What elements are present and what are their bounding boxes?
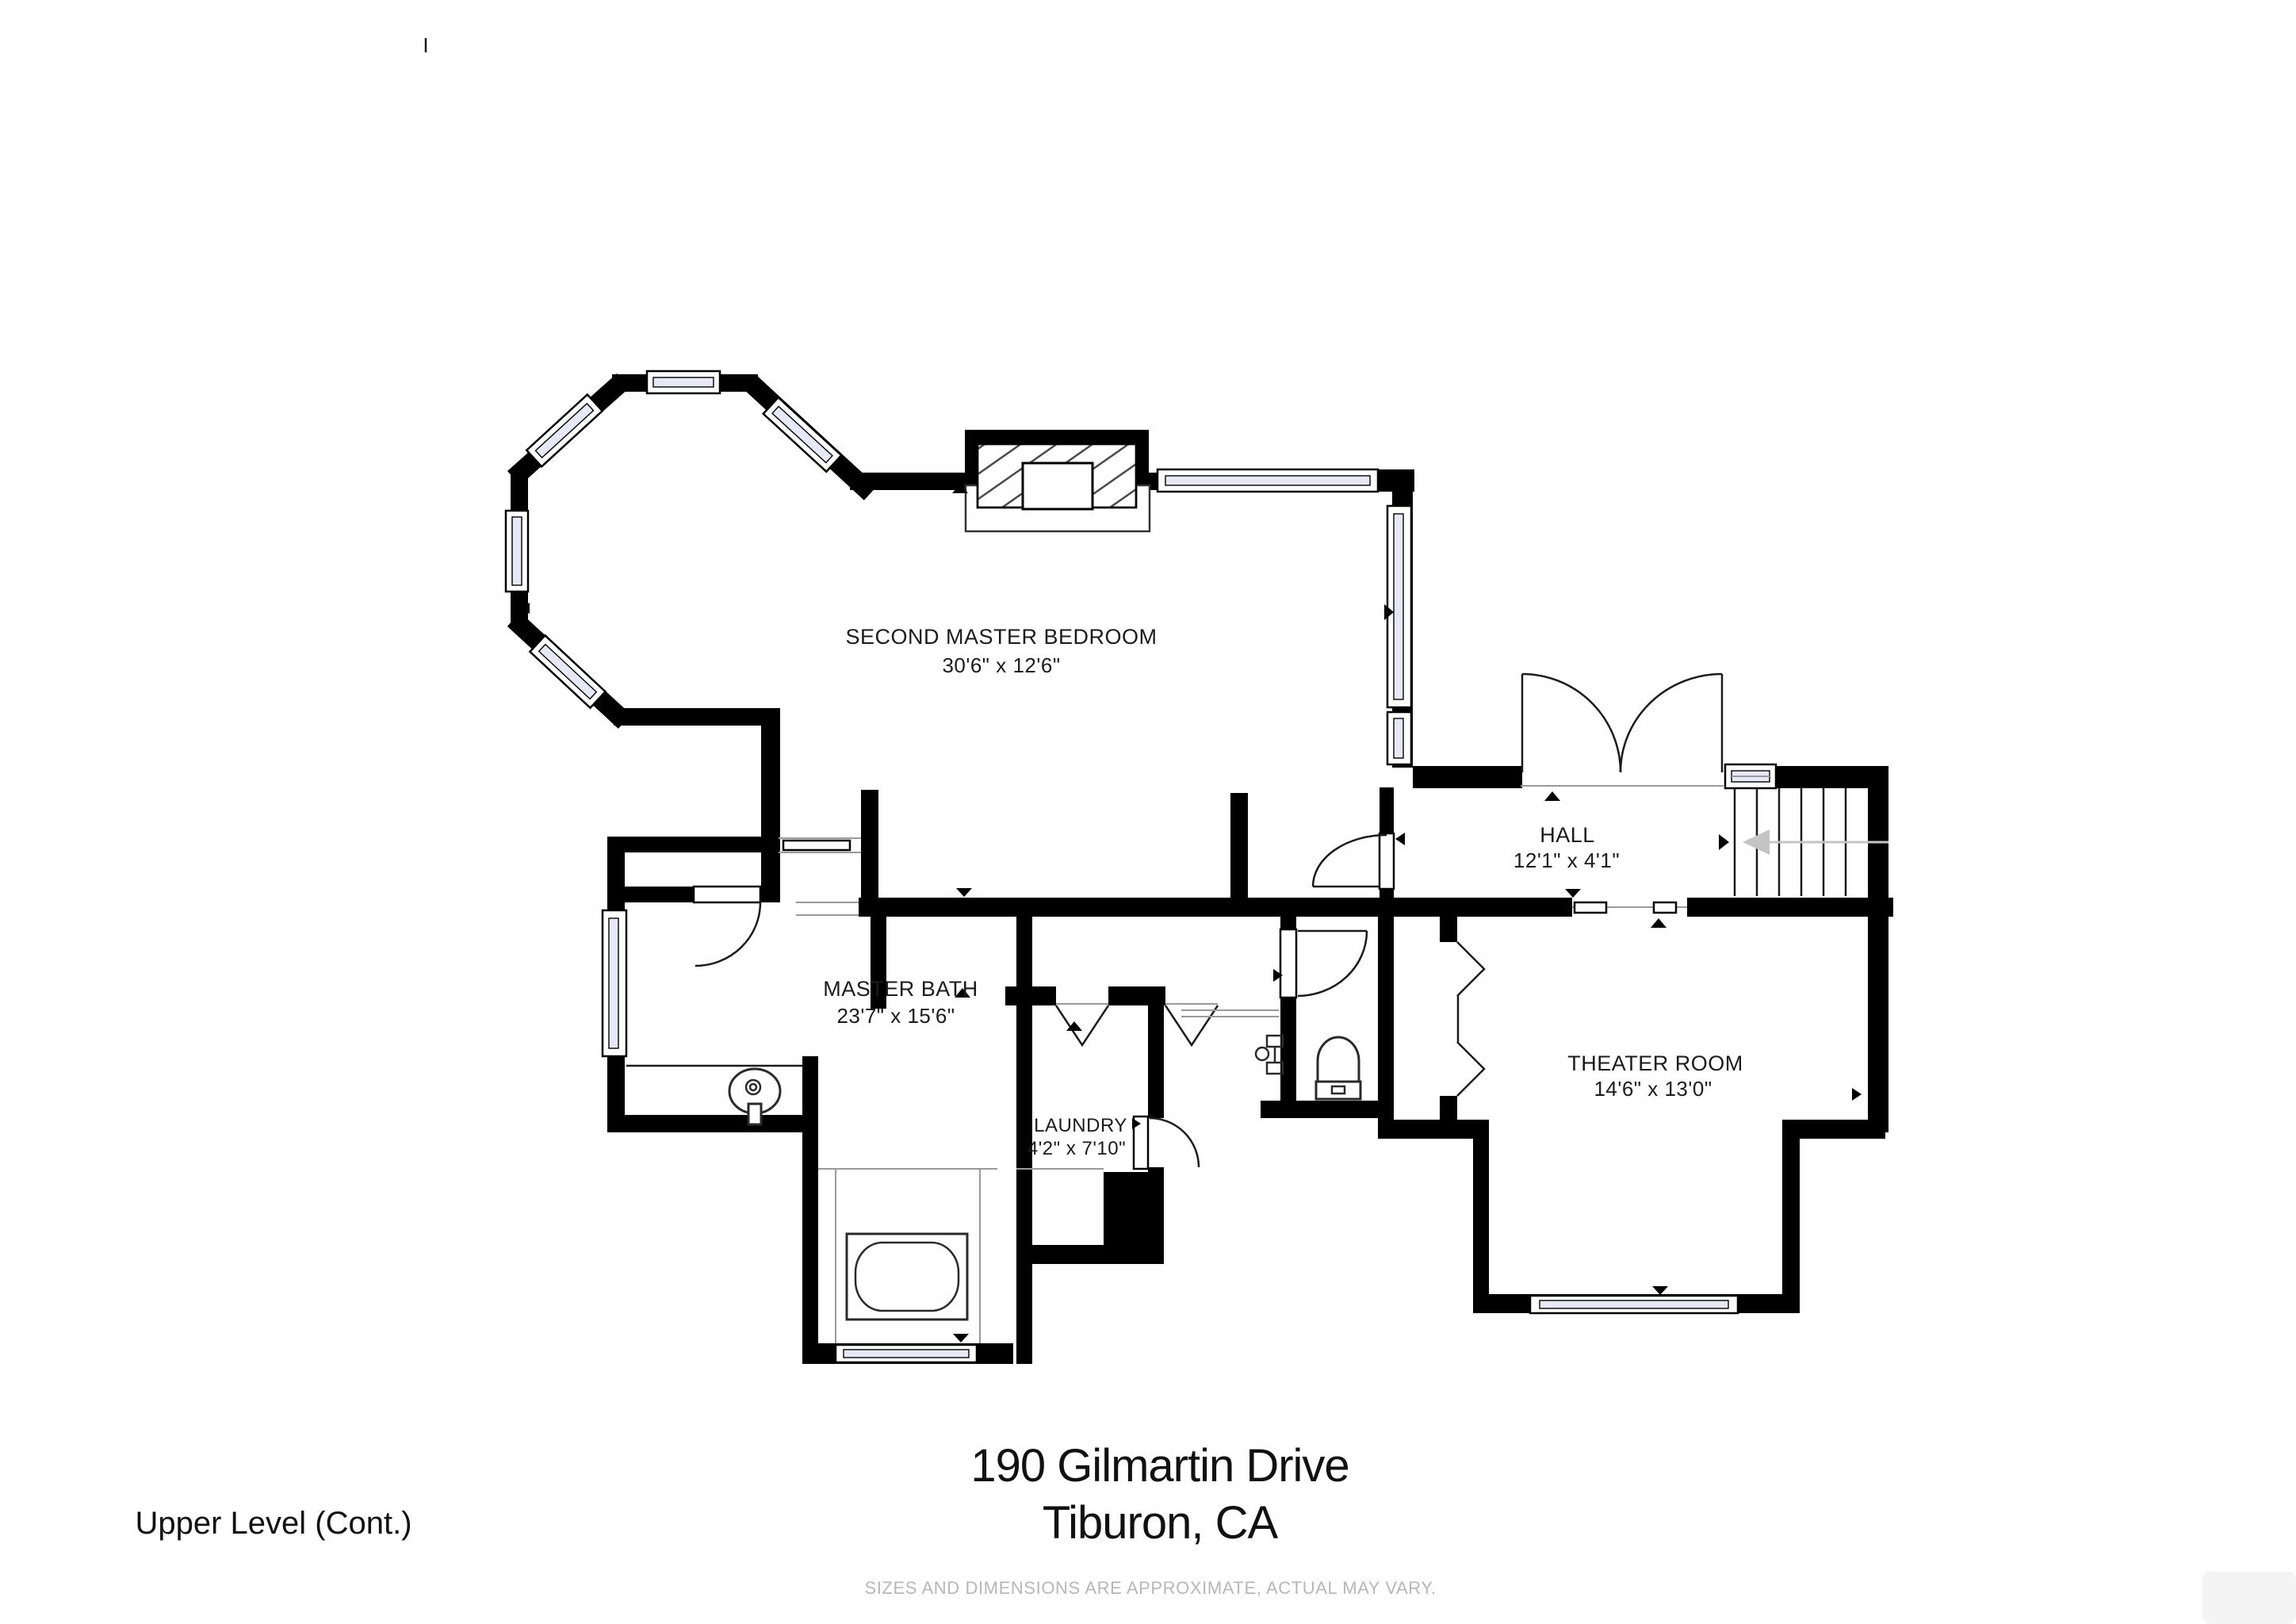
room-label-theater-room: THEATER ROOM 14'6" x 13'0" [1567, 1051, 1743, 1101]
window-symbol [763, 397, 842, 472]
window-symbol [506, 511, 528, 592]
window-symbol [530, 635, 605, 707]
fireplace-icon [965, 430, 1150, 531]
door-swing [694, 887, 760, 966]
door-swing [1313, 833, 1394, 889]
floorplan-drawing: SECOND MASTER BEDROOM 30'6" x 12'6" MAST… [0, 0, 2296, 1624]
window-symbol [1387, 506, 1411, 707]
walls [511, 374, 1893, 1364]
address-line-1: 190 Gilmartin Drive [970, 1440, 1349, 1492]
room-name: LAUNDRY [1034, 1115, 1127, 1136]
room-name: HALL [1540, 823, 1595, 847]
room-label-second-master-bedroom: SECOND MASTER BEDROOM 30'6" x 12'6" [845, 625, 1157, 677]
room-label-hall: HALL 12'1" x 4'1" [1513, 823, 1620, 872]
stairs-icon [1719, 788, 1888, 896]
room-dims: 12'1" x 4'1" [1513, 848, 1620, 872]
window-symbol [1387, 712, 1411, 764]
floorplan-page: SECOND MASTER BEDROOM 30'6" x 12'6" MAST… [0, 0, 2296, 1624]
address-line-2: Tiburon, CA [1043, 1497, 1279, 1549]
window-symbol [1530, 1296, 1738, 1313]
watermark-blob [2202, 1572, 2296, 1624]
doors [694, 674, 1724, 1169]
double-door-swing [1521, 674, 1724, 786]
window-symbol [836, 1345, 977, 1362]
door-swing [1280, 929, 1367, 998]
room-dims: 4'2" x 7'10" [1027, 1138, 1126, 1159]
pedestal-sink-icon [1256, 1036, 1283, 1074]
room-label-laundry: LAUNDRY 4'2" x 7'10" [1020, 1115, 1141, 1159]
room-label-master-bath: MASTER BATH 23'7" x 15'6" [823, 977, 978, 1028]
room-dims: 23'7" x 15'6" [836, 1004, 955, 1028]
window-symbol [647, 371, 720, 393]
disclaimer-text: SIZES AND DIMENSIONS ARE APPROXIMATE, AC… [864, 1578, 1436, 1598]
window-symbol [1158, 469, 1378, 492]
window-symbol [603, 910, 626, 1056]
door-swing [1134, 1116, 1199, 1169]
room-name: MASTER BATH [823, 977, 978, 1001]
window-symbol [526, 395, 603, 467]
bathtub-icon [818, 1169, 997, 1343]
footer: 190 Gilmartin Drive Tiburon, CA Upper Le… [135, 1440, 1436, 1598]
toilet-icon [1316, 1037, 1360, 1099]
room-dims: 14'6" x 13'0" [1594, 1077, 1712, 1101]
theater-double-door-icon [1457, 942, 1484, 1096]
room-dims: 30'6" x 12'6" [942, 653, 1060, 677]
window-symbol [1725, 764, 1776, 788]
room-name: THEATER ROOM [1567, 1051, 1743, 1075]
room-name: SECOND MASTER BEDROOM [845, 625, 1157, 649]
level-label: Upper Level (Cont.) [135, 1506, 411, 1541]
